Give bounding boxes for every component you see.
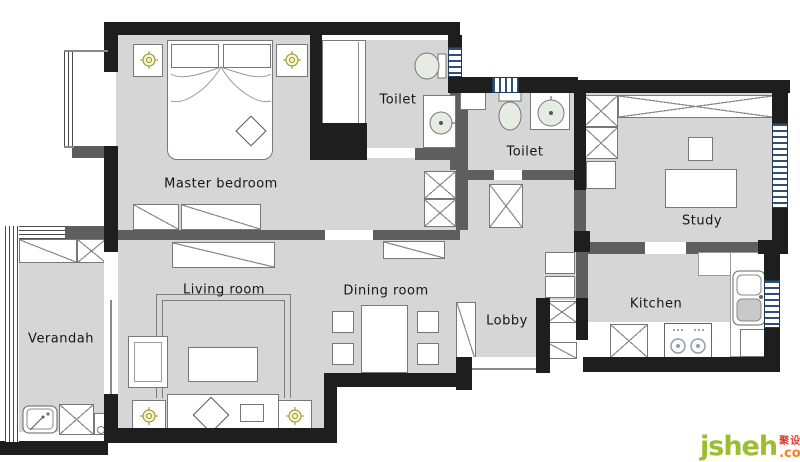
sink-icon-toilet-middle (536, 96, 566, 128)
label-study: Study (682, 214, 722, 229)
sofa-tray (240, 404, 264, 422)
study-cabinet-3 (586, 161, 616, 189)
window-toilet-top (448, 47, 462, 77)
label-toilet-middle: Toilet (506, 145, 543, 160)
wall-study-left (574, 93, 586, 190)
verandah-glass-left (5, 226, 19, 442)
study-wardrobe (618, 95, 773, 118)
verandah-cabinet-top (19, 239, 77, 263)
hall-cabinet-2 (424, 199, 456, 227)
tv-cabinet (172, 242, 275, 268)
toilet-icon-middle (496, 92, 524, 132)
lobby-box-2 (545, 276, 575, 298)
wall-top (104, 22, 460, 35)
label-lobby: Lobby (486, 314, 528, 329)
coffee-table (188, 347, 258, 382)
kitchen-sink-icon (732, 270, 766, 326)
label-master-bedroom: Master bedroom (164, 177, 278, 192)
wall-living-bottom (104, 428, 337, 443)
toilet-icon-top (414, 50, 448, 82)
wall-kitchen-left-black (574, 231, 590, 252)
study-desk (665, 169, 737, 208)
toilet-middle-corner-box (460, 92, 486, 110)
wall-kitchen-right-lower (764, 328, 780, 360)
wall-bedroom-left-top (104, 22, 118, 72)
window-toilet-middle (492, 77, 519, 93)
wall-bay-bottom (72, 146, 104, 158)
wall-kitchen-bottom (583, 357, 780, 372)
label-living-room: Living room (183, 283, 265, 298)
wall-study-top (568, 80, 790, 93)
kitchen-box-small (740, 329, 766, 357)
label-toilet-top: Toilet (379, 93, 416, 108)
shower-divider (358, 42, 359, 126)
door-gap-toilet-middle (494, 170, 522, 180)
lamp-icon-bedroom-left (140, 51, 158, 69)
sink-icon-toilet-top (428, 110, 456, 136)
label-kitchen: Kitchen (630, 297, 682, 312)
watermark-suffix: .com (779, 447, 800, 460)
lamp-icon-living-left (140, 407, 158, 425)
wall-toilet-top-corner (310, 123, 367, 160)
door-gap-study (645, 242, 686, 254)
lobby-box-1 (545, 252, 575, 274)
window-kitchen (764, 280, 780, 328)
lobby-cabinet (489, 184, 523, 228)
shoe-cabinet (383, 241, 445, 259)
dining-chair-3 (417, 311, 439, 333)
laundry-sink-icon (22, 405, 58, 435)
dining-chair-1 (332, 311, 354, 333)
wall-bedroom-living-right (373, 230, 460, 240)
bedroom-dresser-small (133, 204, 179, 230)
verandah-cabinet-top-x (77, 239, 106, 263)
bedroom-dresser-large (181, 204, 261, 230)
study-cabinet-2 (584, 127, 618, 159)
study-cabinet-1 (584, 95, 618, 127)
window-study (772, 123, 788, 208)
floor-plan: Master bedroom Toilet Toilet Study Livin… (0, 0, 800, 462)
bay-window-bottom (64, 146, 74, 148)
wall-toilet-middle-top-l (448, 77, 492, 93)
dining-chair-2 (332, 343, 354, 365)
armchair-cushion (134, 342, 162, 382)
door-gap-bedroom (325, 230, 373, 240)
entrance-door-leaf (547, 342, 577, 359)
lamp-icon-bedroom-right (283, 51, 301, 69)
wall-kitchen-left-upper (574, 190, 586, 231)
verandah-door-line (110, 300, 112, 394)
shower-area (322, 40, 366, 128)
wall-lobby-bottom-stub (456, 357, 472, 390)
wall-dining-bottom (324, 373, 464, 387)
wall-entrance-right (576, 298, 588, 340)
bay-window-glass (64, 52, 73, 146)
label-verandah: Verandah (28, 332, 94, 347)
label-dining-room: Dining room (343, 284, 428, 299)
watermark-logo: jsheh 聚设汇 .com (700, 424, 798, 460)
hall-cabinet-1 (424, 171, 456, 199)
wall-toilet-middle-bottom-r (522, 170, 576, 180)
study-chair (688, 137, 713, 161)
wall-study-right-upper (772, 93, 788, 123)
dining-chair-4 (417, 343, 439, 365)
wall-entrance-left (536, 298, 550, 373)
wall-left-mid (104, 146, 118, 252)
lamp-icon-living-right (286, 407, 304, 425)
wall-bedroom-right (310, 22, 322, 125)
bed-pillow-right (223, 44, 271, 68)
dining-table (361, 305, 408, 373)
kitchen-cabinet (610, 324, 648, 358)
bed-pillow-left (171, 44, 219, 68)
wall-study-kitchen-l (584, 242, 645, 254)
lobby-threshold-line (472, 368, 536, 370)
dining-divider-cabinet (456, 302, 476, 360)
verandah-cabinet-bottom (59, 404, 94, 435)
wall-verandah-top (62, 226, 104, 240)
wall-bedroom-living-left (116, 230, 325, 240)
stove-icon (664, 323, 712, 359)
wall-toilet-top-right-upper (448, 35, 462, 47)
wall-kitchen-right-upper (764, 252, 780, 280)
wall-verandah-bottom (0, 441, 108, 455)
entrance-cabinet (547, 301, 577, 323)
watermark-brand: jsheh (700, 433, 777, 460)
wall-hall-lobby (456, 168, 468, 230)
entrance-opening (550, 360, 576, 372)
